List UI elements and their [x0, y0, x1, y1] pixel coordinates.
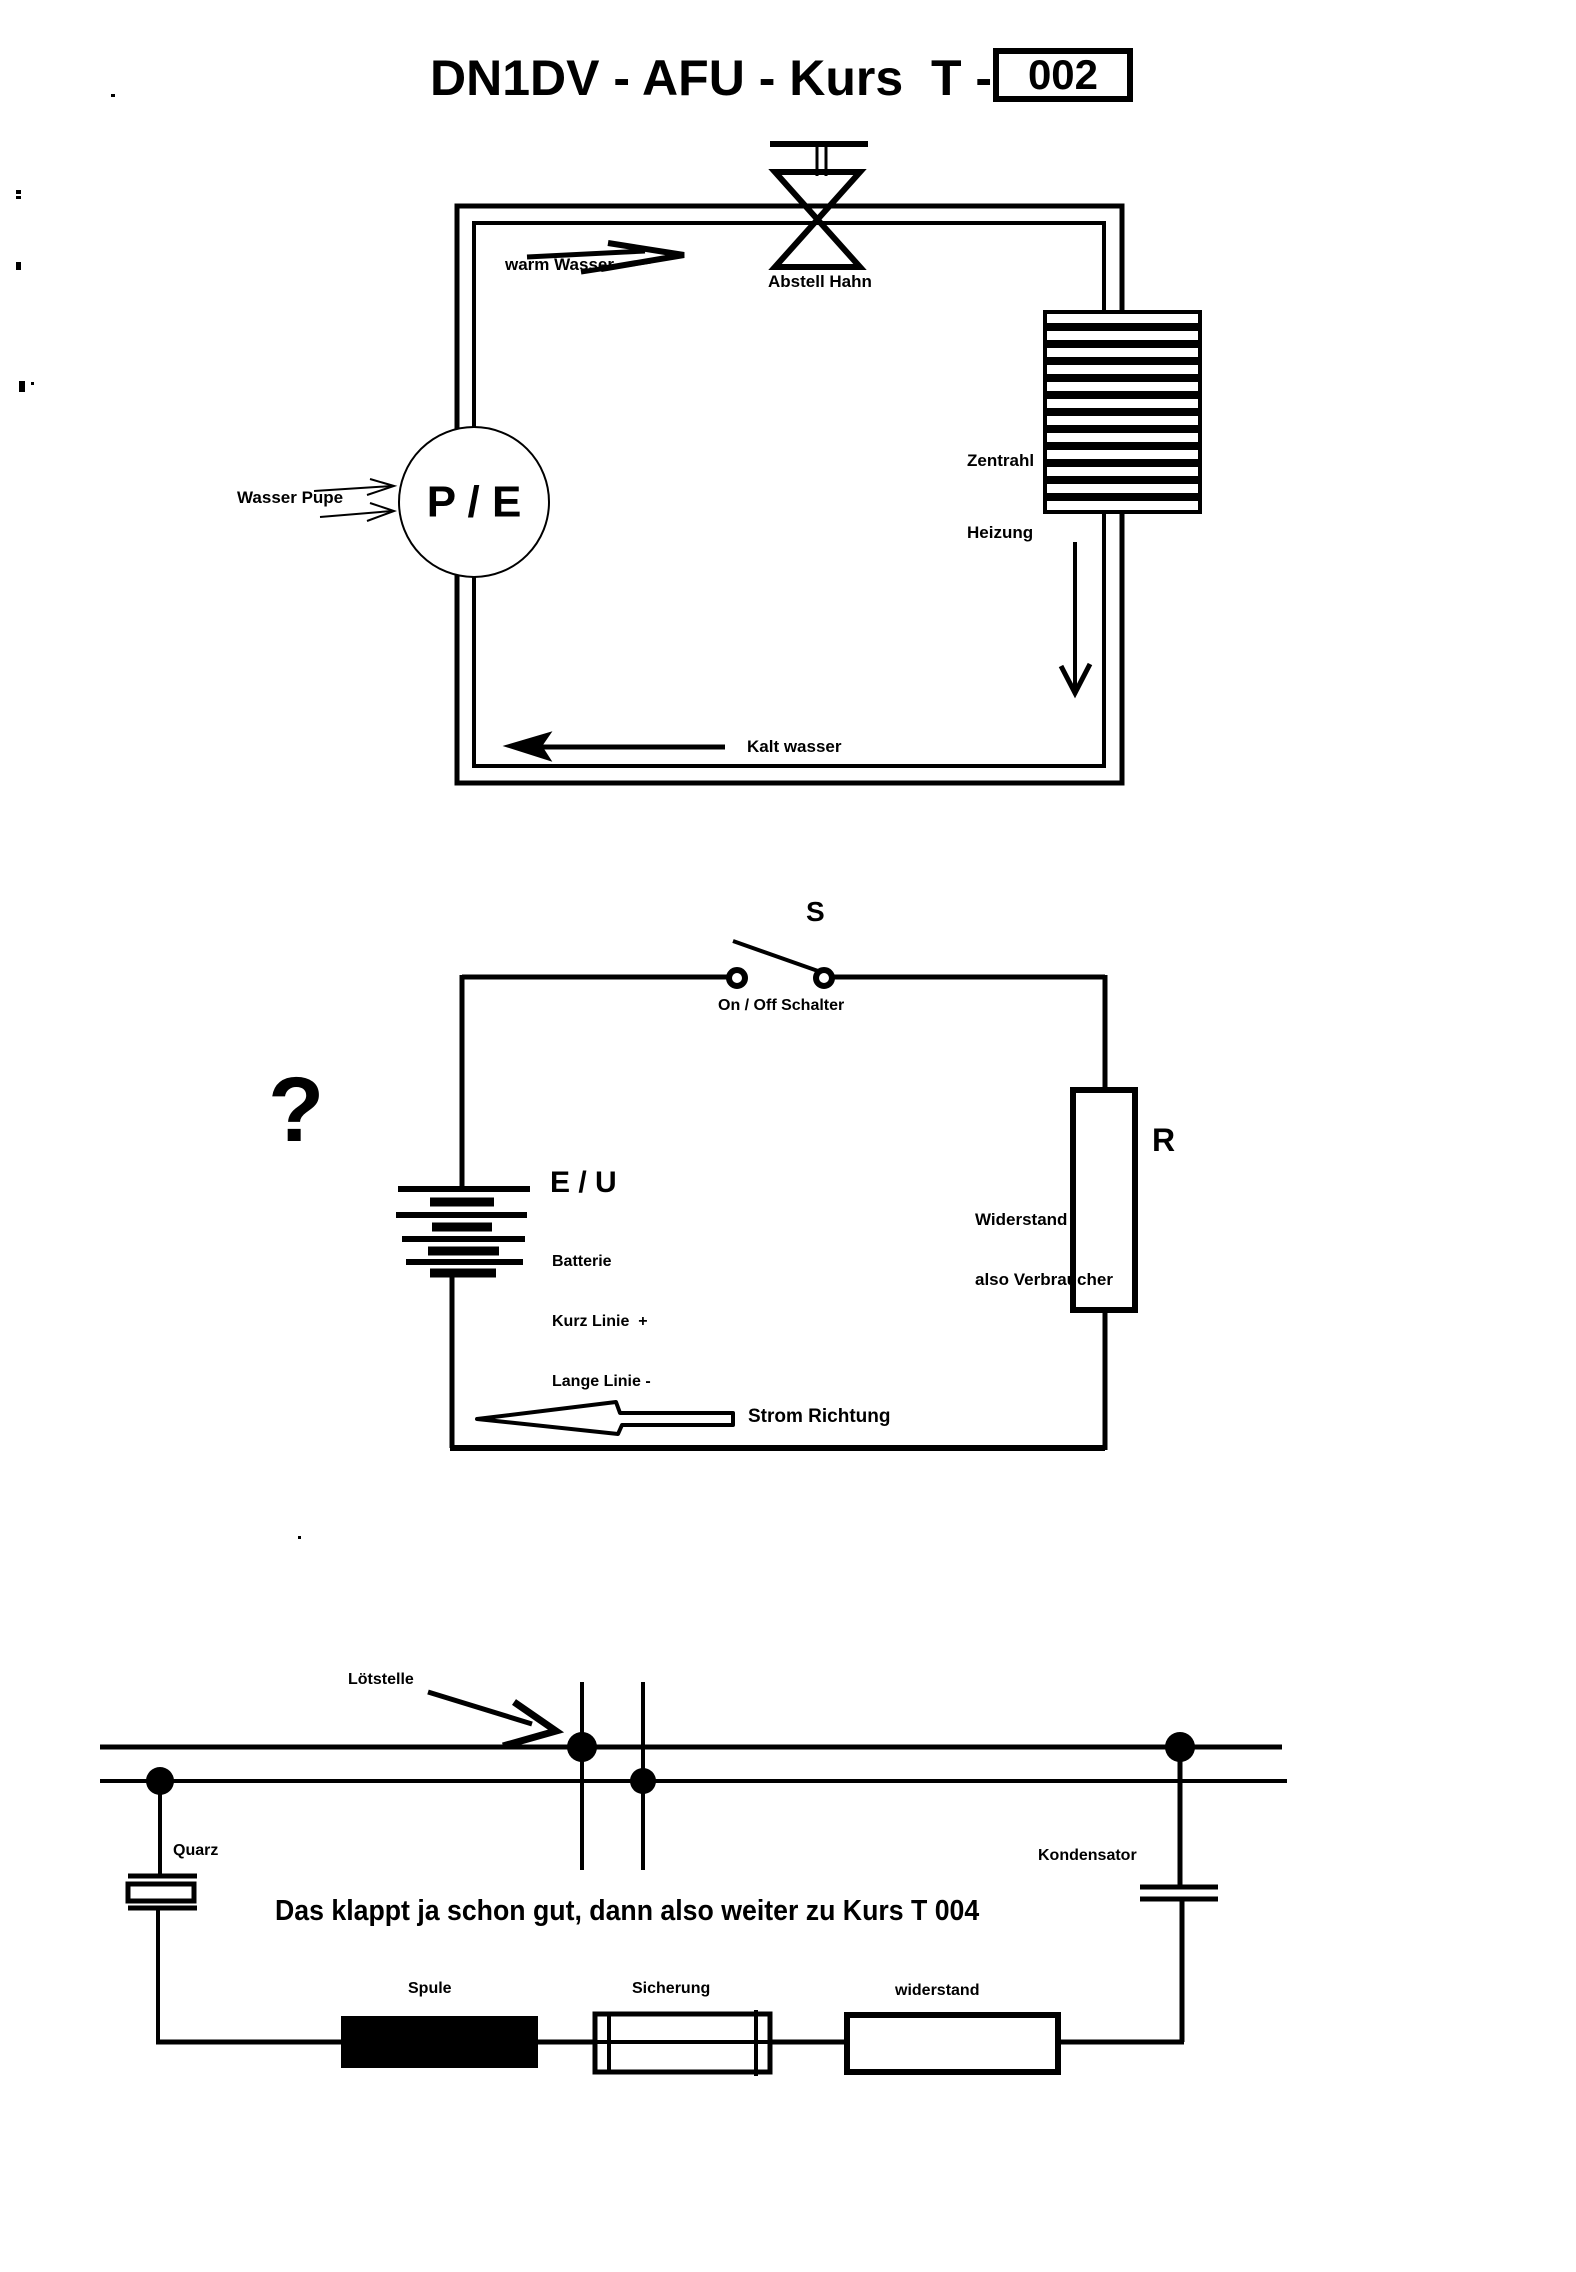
heater-label-line1: Zentrahl — [967, 449, 1034, 473]
resistor-box-label: widerstand — [895, 1982, 979, 2000]
switch-label: On / Off Schalter — [718, 997, 844, 1015]
scanned-course-sheet: DN1DV - AFU - Kurs T - 002 warm Wasser A… — [0, 0, 1576, 2272]
scan-artifact — [19, 381, 25, 392]
resistor-box-icon — [847, 2015, 1058, 2072]
battery-note-line1: Batterie — [552, 1252, 651, 1272]
valve-label: Abstell Hahn — [768, 272, 872, 292]
battery-note-line3: Lange Linie - — [552, 1372, 651, 1392]
switch-icon — [729, 941, 832, 986]
crystal-icon — [128, 1781, 197, 2044]
heater-label-line2: Heizung — [967, 521, 1034, 545]
fuse-label: Sicherung — [632, 1980, 710, 1998]
solder-joint-dots — [146, 1732, 1195, 1795]
bus-lines — [100, 1682, 1287, 1870]
pump-label: Wasser Pupe — [237, 488, 343, 508]
resistor-note: Widerstand also Verbraucher — [975, 1170, 1113, 1330]
coil-icon — [341, 2016, 538, 2068]
flow-down-arrow-icon — [1061, 542, 1090, 693]
page-title: DN1DV - AFU - Kurs T - — [430, 50, 992, 108]
scan-artifact — [16, 196, 21, 199]
warm-water-label: warm Wasser — [505, 255, 614, 275]
current-label: Strom Richtung — [748, 1406, 891, 1428]
capacitor-label: Kondensator — [1038, 1847, 1137, 1865]
battery-note-line2: Kurz Linie + — [552, 1312, 651, 1332]
question-mark: ? — [268, 1064, 324, 1156]
capacitor-icon — [1140, 1747, 1218, 2042]
course-number: 002 — [1028, 54, 1098, 96]
heater-label: Zentrahl Heizung — [967, 401, 1034, 593]
resistor-symbol: R — [1152, 1122, 1175, 1159]
solder-label: Lötstelle — [348, 1671, 414, 1689]
scan-artifact — [111, 94, 115, 97]
scan-artifact — [16, 190, 21, 194]
diagram-canvas — [0, 0, 1576, 2272]
resistor-note-line1: Widerstand — [975, 1210, 1113, 1230]
course-number-box: 002 — [993, 48, 1133, 102]
progress-message: Das klappt ja schon gut, dann also weite… — [275, 1895, 979, 1928]
cold-water-label: Kalt wasser — [747, 737, 842, 757]
radiator-icon — [1045, 312, 1200, 512]
switch-symbol: S — [806, 896, 825, 928]
fuse-icon — [595, 2010, 770, 2076]
crystal-label: Quarz — [173, 1842, 218, 1860]
battery-note: Batterie Kurz Linie + Lange Linie - — [552, 1212, 651, 1432]
cold-water-arrow-icon — [506, 733, 725, 760]
scan-artifact — [298, 1536, 301, 1539]
battery-icon — [396, 1189, 530, 1273]
pump-symbol: P / E — [427, 478, 522, 529]
source-symbol: E / U — [550, 1166, 617, 1201]
scan-artifact — [31, 382, 34, 385]
resistor-note-line2: also Verbraucher — [975, 1270, 1113, 1290]
coil-label: Spule — [408, 1980, 452, 1998]
scan-artifact — [16, 262, 21, 270]
solder-arrow-icon — [428, 1692, 556, 1746]
